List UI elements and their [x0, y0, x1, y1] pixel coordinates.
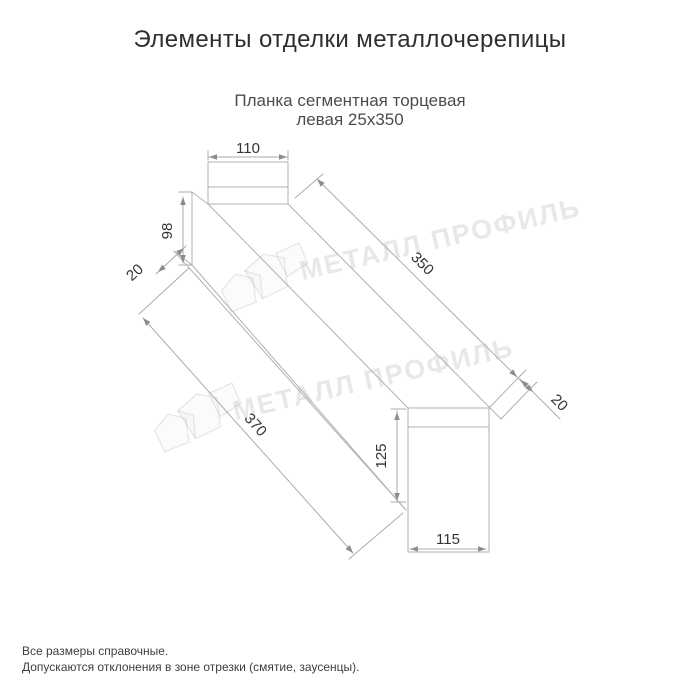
watermark-upper: МЕТАЛЛ ПРОФИЛЬ — [215, 179, 586, 313]
dim-20-right-label: 20 — [547, 391, 571, 415]
technical-drawing: МЕТАЛЛ ПРОФИЛЬ МЕТАЛЛ ПРОФИЛЬ — [0, 0, 700, 700]
dimension-left-height: 98 — [159, 192, 192, 265]
dimension-right-fold: 20 — [518, 370, 571, 419]
drawing-page: Элементы отделки металлочерепицы Планка … — [0, 0, 700, 700]
dim-20-left-label: 20 — [123, 261, 147, 285]
left-end-face — [208, 162, 288, 204]
footer-note-1: Все размеры справочные. — [22, 644, 682, 660]
dimension-right-height: 125 — [373, 409, 406, 502]
dim-98-label: 98 — [159, 223, 176, 240]
watermark-text: МЕТАЛЛ ПРОФИЛЬ — [297, 192, 584, 286]
metall-profil-logo-icon — [215, 242, 314, 313]
metall-profil-logo-icon — [148, 382, 247, 453]
footer-note-2: Допускаются отклонения в зоне отрезки (с… — [22, 660, 682, 676]
footer-notes: Все размеры справочные. Допускаются откл… — [22, 644, 682, 675]
dim-125-label: 125 — [373, 443, 390, 468]
dimension-top-width: 110 — [208, 140, 288, 160]
dim-115-label: 115 — [436, 531, 460, 548]
watermark-text: МЕТАЛЛ ПРОФИЛЬ — [230, 332, 517, 426]
dim-110-label: 110 — [236, 140, 260, 157]
dimension-bottom-width: 115 — [410, 531, 486, 552]
